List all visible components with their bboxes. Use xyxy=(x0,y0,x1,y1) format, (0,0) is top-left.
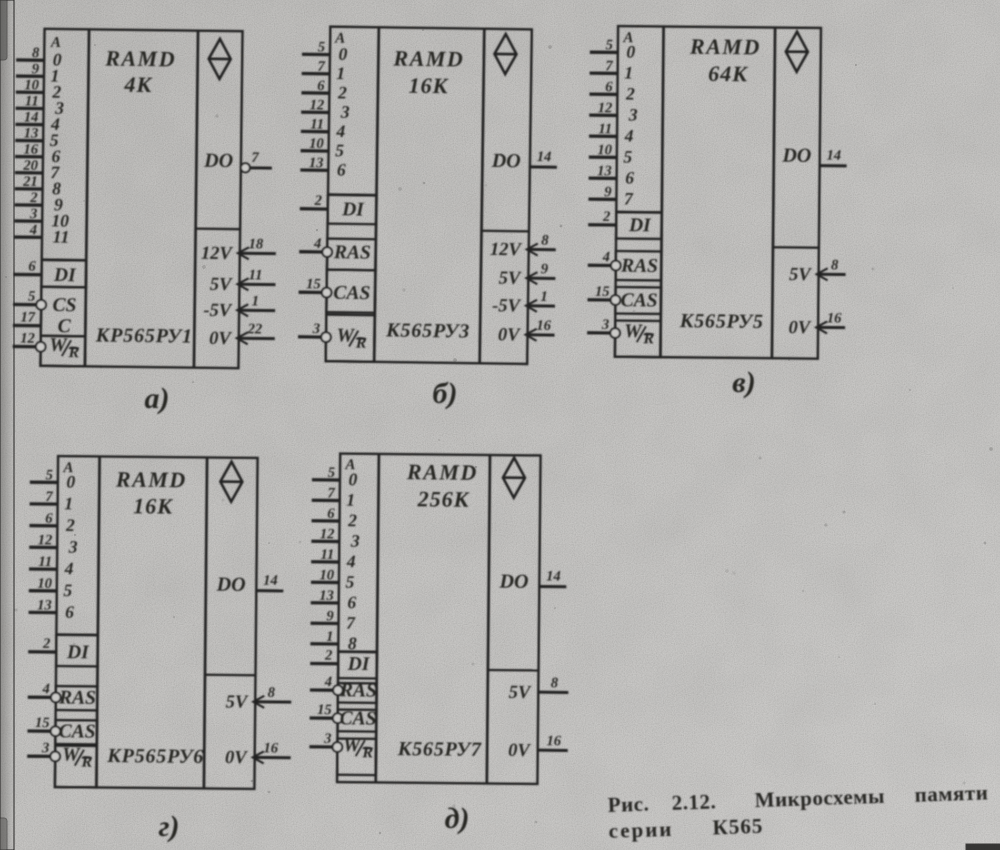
svg-text:17: 17 xyxy=(20,310,35,326)
svg-text:5: 5 xyxy=(345,572,354,592)
svg-text:14: 14 xyxy=(537,149,552,165)
svg-text:2: 2 xyxy=(29,190,37,206)
svg-text:RAS: RAS xyxy=(339,680,377,701)
svg-text:0V: 0V xyxy=(209,329,232,349)
svg-text:16: 16 xyxy=(827,310,842,326)
svg-text:RAMD: RAMD xyxy=(406,459,478,485)
svg-text:12: 12 xyxy=(310,97,325,113)
svg-text:12: 12 xyxy=(38,532,53,548)
svg-text:R: R xyxy=(355,335,367,352)
svg-text:W: W xyxy=(49,335,68,356)
svg-text:8: 8 xyxy=(831,257,839,273)
svg-text:3: 3 xyxy=(350,531,360,551)
svg-text:8: 8 xyxy=(348,633,357,653)
svg-text:CS: CS xyxy=(52,295,76,316)
svg-text:8: 8 xyxy=(268,685,276,701)
svg-text:12: 12 xyxy=(598,100,613,116)
svg-text:RAMD: RAMD xyxy=(392,45,464,71)
svg-text:9: 9 xyxy=(604,184,611,200)
svg-text:6: 6 xyxy=(45,511,53,527)
svg-text:4К: 4К xyxy=(123,72,152,97)
svg-text:12V: 12V xyxy=(201,244,234,264)
svg-text:DI: DI xyxy=(347,654,371,675)
svg-text:6: 6 xyxy=(317,78,325,94)
svg-text:10: 10 xyxy=(597,142,612,158)
svg-text:3: 3 xyxy=(340,102,350,122)
svg-text:6: 6 xyxy=(28,259,36,275)
svg-text:DO: DO xyxy=(216,574,246,596)
svg-text:2: 2 xyxy=(314,193,322,209)
svg-text:3: 3 xyxy=(601,317,609,333)
svg-text:RAS: RAS xyxy=(333,242,371,264)
svg-text:6: 6 xyxy=(605,79,613,95)
svg-text:14: 14 xyxy=(24,109,39,125)
svg-text:2: 2 xyxy=(625,84,635,104)
svg-text:16К: 16К xyxy=(133,493,173,518)
svg-text:9: 9 xyxy=(326,608,333,624)
svg-text:10: 10 xyxy=(24,77,39,93)
svg-text:15: 15 xyxy=(306,276,321,292)
svg-text:RAMD: RAMD xyxy=(104,46,176,72)
svg-text:5V: 5V xyxy=(789,265,812,285)
svg-text:21: 21 xyxy=(22,174,38,190)
svg-text:C: C xyxy=(58,316,72,337)
svg-text:11: 11 xyxy=(598,121,612,137)
svg-text:4: 4 xyxy=(324,674,332,690)
svg-text:7: 7 xyxy=(327,485,335,501)
svg-text:13: 13 xyxy=(597,163,612,179)
svg-text:DO: DO xyxy=(491,150,521,172)
svg-text:5: 5 xyxy=(318,39,325,55)
svg-text:КР565РУ1: КР565РУ1 xyxy=(95,324,193,347)
svg-text:5V: 5V xyxy=(509,683,532,703)
svg-text:DO: DO xyxy=(781,145,811,167)
svg-text:3: 3 xyxy=(628,105,638,125)
svg-text:1: 1 xyxy=(326,629,333,645)
svg-text:2: 2 xyxy=(347,510,357,530)
svg-text:5: 5 xyxy=(63,580,72,600)
svg-text:5: 5 xyxy=(28,289,35,305)
svg-text:4: 4 xyxy=(64,558,74,578)
svg-text:8: 8 xyxy=(32,45,40,61)
svg-text:DI: DI xyxy=(341,199,365,220)
svg-text:4: 4 xyxy=(335,121,345,141)
svg-text:CAS: CAS xyxy=(333,283,370,305)
svg-text:3: 3 xyxy=(29,206,37,222)
svg-text:11: 11 xyxy=(38,554,52,570)
svg-text:4: 4 xyxy=(624,125,634,145)
svg-text:2: 2 xyxy=(42,636,50,652)
svg-text:-5V: -5V xyxy=(203,301,233,321)
svg-text:5: 5 xyxy=(606,37,613,53)
svg-text:К565РУ7: К565РУ7 xyxy=(397,738,482,761)
svg-text:16: 16 xyxy=(547,733,562,749)
svg-text:2: 2 xyxy=(324,648,332,664)
svg-text:13: 13 xyxy=(319,588,334,604)
svg-text:7: 7 xyxy=(317,59,325,75)
svg-text:13: 13 xyxy=(37,597,52,613)
svg-text:5: 5 xyxy=(623,146,632,166)
svg-text:CAS: CAS xyxy=(59,721,96,742)
svg-text:14: 14 xyxy=(826,148,841,164)
svg-text:К565РУ5: К565РУ5 xyxy=(679,310,764,333)
svg-text:DI: DI xyxy=(628,215,652,236)
svg-text:5: 5 xyxy=(328,465,335,481)
svg-text:3: 3 xyxy=(312,321,320,337)
svg-text:DI: DI xyxy=(66,642,90,663)
svg-text:DO: DO xyxy=(499,571,529,593)
svg-text:18: 18 xyxy=(249,236,264,252)
svg-text:2: 2 xyxy=(602,209,610,225)
svg-text:W: W xyxy=(62,745,81,766)
svg-text:11: 11 xyxy=(53,227,70,247)
svg-text:5: 5 xyxy=(335,140,344,160)
svg-text:д): д) xyxy=(445,802,470,835)
svg-text:RAS: RAS xyxy=(58,687,96,708)
svg-text:11: 11 xyxy=(310,117,324,133)
svg-text:11: 11 xyxy=(249,267,263,283)
svg-text:CAS: CAS xyxy=(340,708,377,729)
svg-text:9: 9 xyxy=(541,261,548,277)
svg-text:64К: 64К xyxy=(708,61,748,86)
svg-text:0V: 0V xyxy=(498,325,522,345)
svg-text:К565РУ3: К565РУ3 xyxy=(385,319,470,342)
svg-text:10: 10 xyxy=(319,567,334,583)
svg-text:RAMD: RAMD xyxy=(115,467,187,493)
svg-text:4: 4 xyxy=(29,222,37,238)
svg-text:DI: DI xyxy=(53,265,77,286)
svg-text:13: 13 xyxy=(309,155,324,171)
svg-text:в): в) xyxy=(732,366,755,399)
svg-text:6: 6 xyxy=(327,506,335,522)
svg-text:7: 7 xyxy=(346,613,356,633)
svg-text:R: R xyxy=(80,754,92,771)
svg-text:16: 16 xyxy=(263,740,278,756)
svg-text:3: 3 xyxy=(41,740,49,756)
svg-text:12: 12 xyxy=(320,526,335,542)
svg-text:RAMD: RAMD xyxy=(689,34,761,60)
svg-text:1: 1 xyxy=(346,490,355,510)
svg-text:0: 0 xyxy=(66,472,75,492)
svg-text:W: W xyxy=(336,325,355,346)
svg-text:5V: 5V xyxy=(226,692,249,712)
svg-text:г): г) xyxy=(158,810,179,843)
svg-text:0: 0 xyxy=(348,469,357,489)
svg-text:256К: 256К xyxy=(417,486,470,512)
svg-text:КР565РУ6: КР565РУ6 xyxy=(106,745,204,768)
svg-text:4: 4 xyxy=(346,551,356,571)
svg-text:6: 6 xyxy=(65,602,74,622)
svg-text:16: 16 xyxy=(536,318,551,334)
svg-text:8: 8 xyxy=(541,233,549,249)
svg-text:4: 4 xyxy=(313,236,321,252)
svg-text:6: 6 xyxy=(347,592,356,612)
svg-text:14: 14 xyxy=(263,573,278,589)
svg-text:3: 3 xyxy=(68,537,78,557)
svg-text:4: 4 xyxy=(42,681,50,697)
svg-text:6: 6 xyxy=(337,160,346,180)
svg-text:15: 15 xyxy=(595,284,610,300)
svg-text:б): б) xyxy=(433,377,458,410)
svg-text:15: 15 xyxy=(317,702,332,718)
svg-text:10: 10 xyxy=(37,576,52,592)
svg-text:2: 2 xyxy=(65,515,75,535)
svg-text:22: 22 xyxy=(247,321,263,337)
svg-text:4: 4 xyxy=(602,249,610,265)
svg-text:W: W xyxy=(624,321,643,342)
svg-text:16К: 16К xyxy=(408,73,448,99)
svg-text:16: 16 xyxy=(23,142,38,158)
svg-text:W: W xyxy=(343,735,362,756)
svg-text:8: 8 xyxy=(551,675,559,691)
svg-text:5V: 5V xyxy=(210,275,233,295)
svg-text:11: 11 xyxy=(320,547,334,563)
svg-text:3: 3 xyxy=(323,731,331,747)
svg-text:0V: 0V xyxy=(225,748,248,768)
svg-text:а): а) xyxy=(145,382,170,415)
svg-text:14: 14 xyxy=(546,569,561,585)
svg-text:1: 1 xyxy=(252,293,259,309)
svg-text:7: 7 xyxy=(45,489,53,505)
svg-text:RAS: RAS xyxy=(620,256,658,277)
svg-text:2: 2 xyxy=(337,82,347,102)
svg-text:0V: 0V xyxy=(788,318,811,338)
svg-text:11: 11 xyxy=(25,93,39,109)
svg-text:R: R xyxy=(67,344,79,361)
svg-text:CAS: CAS xyxy=(621,290,658,311)
svg-text:1: 1 xyxy=(540,289,547,305)
svg-text:1: 1 xyxy=(336,63,345,83)
svg-text:13: 13 xyxy=(24,126,39,142)
svg-text:7: 7 xyxy=(624,188,634,208)
svg-text:0V: 0V xyxy=(508,741,531,761)
svg-text:R: R xyxy=(361,744,373,761)
svg-text:DO: DO xyxy=(203,150,233,172)
svg-text:1: 1 xyxy=(624,62,633,82)
svg-text:-5V: -5V xyxy=(492,296,522,316)
svg-text:10: 10 xyxy=(309,136,324,152)
svg-text:0: 0 xyxy=(338,44,347,64)
svg-text:15: 15 xyxy=(35,715,50,731)
svg-text:7: 7 xyxy=(251,150,259,166)
svg-text:7: 7 xyxy=(605,58,613,74)
svg-text:9: 9 xyxy=(32,61,39,77)
svg-text:20: 20 xyxy=(22,158,38,174)
svg-text:1: 1 xyxy=(64,493,73,513)
svg-text:6: 6 xyxy=(625,168,634,188)
svg-text:0: 0 xyxy=(626,42,635,62)
svg-text:R: R xyxy=(642,330,654,347)
svg-text:12V: 12V xyxy=(490,240,523,260)
svg-text:5: 5 xyxy=(46,467,53,483)
svg-text:12: 12 xyxy=(20,331,35,347)
svg-text:5V: 5V xyxy=(499,269,523,289)
